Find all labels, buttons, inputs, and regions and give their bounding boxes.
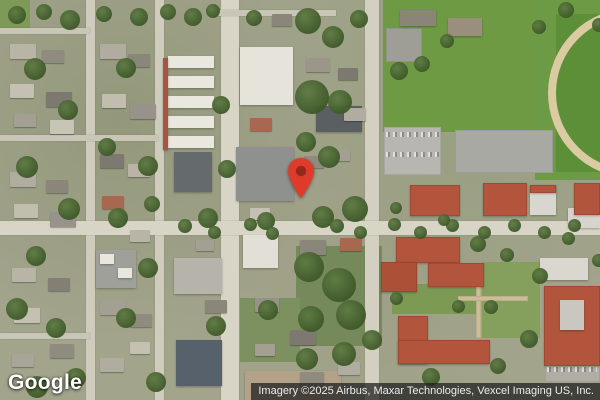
tree-canopy [8,6,26,24]
tree-canopy [558,2,574,18]
house [205,300,227,313]
tree-canopy [470,236,486,252]
house [130,104,156,119]
street-road [0,135,158,141]
satellite-map[interactable]: Google Imagery ©2025 Airbus, Maxar Techn… [0,0,600,400]
tree-canopy [160,4,176,20]
street-road [0,28,90,34]
roof [396,237,460,263]
tree-canopy [138,258,158,278]
house [10,84,34,98]
roof [410,185,460,216]
tree-canopy [538,226,551,239]
tree-canopy [16,156,38,178]
tree-canopy [532,20,546,34]
tree-canopy [592,18,600,32]
tree-canopy [244,218,257,231]
tree-canopy [342,196,368,222]
tree-canopy [592,254,600,267]
tree-canopy [562,232,575,245]
tree-canopy [520,330,538,348]
house [46,180,68,193]
cars [547,367,597,372]
tree-canopy [6,298,28,320]
google-logo[interactable]: Google [8,371,82,395]
house [100,154,124,168]
bldg [240,47,293,105]
bldg [168,136,214,148]
house [14,114,36,127]
tree-canopy [484,300,498,314]
tree-canopy [98,138,116,156]
cars [386,132,439,137]
roof [381,262,417,292]
tree-canopy [388,218,401,231]
surface [455,130,553,173]
tree-canopy [336,300,366,330]
tree-canopy [508,219,521,232]
bldg [168,116,214,128]
tree-canopy [490,358,506,374]
bldg [118,268,132,278]
tree-canopy [295,8,321,34]
tree-canopy [178,219,192,233]
tree-canopy [414,226,427,239]
tree-canopy [298,306,324,332]
tree-canopy [322,268,356,302]
tree-canopy [438,214,450,226]
tree-canopy [24,58,46,80]
tree-canopy [414,56,430,72]
tree-canopy [390,202,402,214]
tree-canopy [354,226,367,239]
roof [483,183,527,216]
tree-canopy [46,318,66,338]
bldg [100,254,114,264]
bldg [168,56,214,68]
house [255,344,275,356]
tree-canopy [116,308,136,328]
pin-body [288,158,314,198]
bldg [560,300,584,330]
house [14,204,38,218]
house [272,14,292,26]
house [290,330,316,345]
tree-canopy [116,58,136,78]
bldg [400,10,436,26]
tree-canopy [206,316,226,336]
house [100,358,124,372]
tree-canopy [198,208,218,228]
house [12,354,34,367]
tree-canopy [130,8,148,26]
tree-canopy [26,246,46,266]
house [48,278,70,291]
tree-canopy [390,62,408,80]
house [100,44,126,59]
bldg [176,340,222,386]
tree-canopy [208,226,221,239]
tree-canopy [246,10,262,26]
house [102,196,124,209]
bldg [168,76,214,88]
tree-canopy [322,26,344,48]
roof [398,340,490,364]
tree-canopy [108,208,128,228]
tree-canopy [296,132,316,152]
house [250,118,272,131]
tree-canopy [362,330,382,350]
tree-canopy [138,156,158,176]
tree-canopy [440,34,454,48]
house [102,94,126,108]
house [338,68,358,80]
tree-canopy [296,348,318,370]
tree-canopy [568,219,581,232]
tree-canopy [36,4,52,20]
roof [530,185,556,193]
bldg [168,96,214,108]
tree-canopy [258,300,278,320]
tree-canopy [146,372,166,392]
tree-canopy [96,6,112,22]
tree-canopy [60,10,80,30]
bldg [236,147,294,201]
roof [574,183,600,215]
bldg [174,152,212,192]
tree-canopy [58,100,78,120]
pin-inner-dot [296,166,306,176]
tree-canopy [266,227,279,240]
house [306,58,330,72]
tree-canopy [332,342,356,366]
street-road [0,333,90,339]
roof [428,263,484,287]
house [130,342,150,354]
tree-canopy [206,4,220,18]
tree-canopy [212,96,230,114]
map-attribution: Imagery ©2025 Airbus, Maxar Technologies… [251,383,600,400]
tree-canopy [58,198,80,220]
house [42,50,64,63]
house [10,44,36,59]
tree-canopy [318,146,340,168]
house [340,238,362,251]
tree-canopy [328,90,352,114]
tree-canopy [330,219,344,233]
house [50,120,74,134]
bldg [163,58,168,150]
tree-canopy [218,160,236,178]
bldg [448,18,482,36]
house [50,344,74,358]
tree-canopy [452,300,465,313]
bldg [174,258,222,294]
tree-canopy [184,8,202,26]
tree-canopy [500,248,514,262]
street-road [86,0,95,400]
tree-canopy [144,196,160,212]
house [130,230,150,242]
tree-canopy [390,292,403,305]
tree-canopy [294,252,324,282]
location-pin-icon[interactable] [288,158,314,198]
tree-canopy [350,10,368,28]
tree-canopy [532,268,548,284]
tree-canopy [295,80,329,114]
house [12,268,36,282]
house [196,240,214,251]
cars [386,152,439,157]
